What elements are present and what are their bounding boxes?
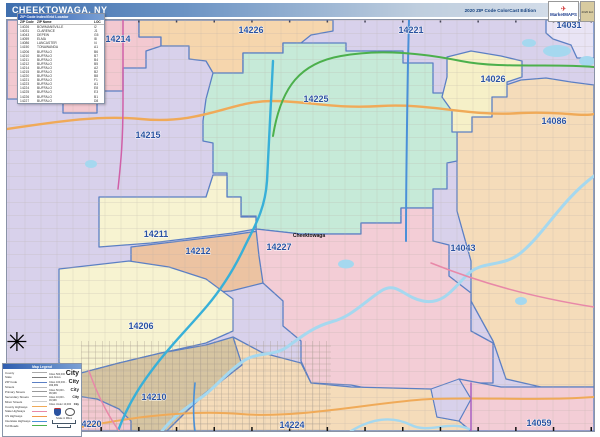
city-size-row: Cities 10,000 - 49,999City [49, 395, 79, 402]
highway-shields [49, 408, 79, 416]
city-sample: City [69, 379, 79, 385]
zip-label-14215: 14215 [135, 130, 160, 140]
interstate-sample [32, 421, 47, 422]
pond [515, 297, 527, 305]
scale-bar [52, 420, 76, 424]
logo-brand-text: MarketMAPS [550, 13, 577, 17]
legend-label: Toll Roads [5, 424, 32, 428]
secondary-street-sample [32, 396, 47, 397]
legend-city-sizes: Cities 500,000 and AboveCity Cities 100,… [47, 370, 79, 428]
zip-label-14211: 14211 [144, 229, 169, 239]
zip-label-14212: 14212 [185, 246, 210, 256]
cell-name: BUFFALO [37, 99, 94, 103]
legend-line-samples: County State ZIP Code Streets Primary St… [5, 370, 47, 428]
legend-label: Streets [5, 385, 32, 389]
legend-item: Toll Roads [5, 423, 47, 428]
interstate-shield-icon [54, 408, 61, 416]
urban-street-texture [81, 341, 331, 431]
zip-label-14214: 14214 [105, 34, 130, 44]
pond [522, 39, 536, 47]
toll-road-sample [32, 425, 47, 426]
legend-body: County State ZIP Code Streets Primary St… [3, 369, 81, 429]
zip-index-table: ZIP Code Index/Grid Locator ZIP Code ZIP… [17, 13, 105, 104]
zip-label-14210: 14210 [141, 392, 166, 402]
cell-zip: 14227 [20, 99, 37, 103]
cell-loc: D8 [94, 99, 102, 103]
state-highway-sample [32, 411, 47, 412]
legend-label: Minor Streets [5, 400, 32, 404]
legend-label: Secondary Streets [5, 395, 32, 399]
table-row: 14227 BUFFALO D8 [18, 99, 104, 103]
scale-bar-small [57, 425, 71, 429]
street-line-sample [32, 387, 47, 388]
col-loc: LOC [94, 20, 102, 24]
legend-label: State [5, 375, 32, 379]
legend-label: Interstate Highways [5, 419, 32, 423]
zip-label-14224: 14224 [279, 420, 304, 430]
us-highway-sample [32, 416, 47, 417]
zip-label-14225: 14225 [303, 94, 328, 104]
state-line-sample [32, 377, 47, 378]
compass-rose-icon: ✳ [6, 328, 28, 356]
legend-label: County Highways [5, 405, 32, 409]
city-sample: City [66, 370, 79, 377]
legend-label: ZIP Code [5, 380, 32, 384]
pond [85, 160, 97, 168]
legend-label: County [5, 371, 32, 375]
zip-label-14206: 14206 [128, 321, 153, 331]
city-sample: City [70, 387, 79, 392]
zip-label-14227: 14227 [266, 242, 291, 252]
city-size-row: Cities 100,000 - 499,999City [49, 379, 79, 387]
city-size-row: Cities Under 10,000City [49, 402, 79, 406]
map-legend: Map Legend County State ZIP Code Streets… [2, 363, 82, 437]
legend-label: US Highways [5, 414, 32, 418]
county-line-sample [32, 372, 47, 373]
city-size-label: Cities Under 10,000 [49, 403, 71, 406]
city-size-row: Cities 50,000 - 99,999City [49, 387, 79, 395]
edition-label: 2020 ZIP Code ColorCast Edition [465, 8, 536, 13]
page: CHEEKTOWAGA, NY 2020 ZIP Code ColorCast … [0, 0, 600, 437]
col-zip-code: ZIP Code [20, 20, 37, 24]
city-sample: City [72, 395, 79, 399]
brand-logo: ✈ MarketMAPS 2020 Ed. [548, 1, 595, 22]
logo-box: ✈ MarketMAPS [548, 1, 579, 22]
legend-label: State Highways [5, 409, 32, 413]
zip-label-14221: 14221 [398, 25, 423, 35]
zip-index-rows: 14026 BOWMANSVILLE I2 14031 CLARENCE J1 … [18, 25, 104, 103]
zip-line-sample [32, 382, 47, 383]
lake [543, 45, 571, 57]
zip-label-14226: 14226 [238, 25, 263, 35]
legend-label: Primary Streets [5, 390, 32, 394]
city-label-cheektowaga: Cheektowaga [293, 233, 325, 239]
zip-label-14086: 14086 [541, 116, 566, 126]
primary-street-sample [32, 391, 47, 392]
zip-label-14026: 14026 [480, 74, 505, 84]
city-size-row: Cities 500,000 and AboveCity [49, 370, 79, 379]
county-highway-sample [32, 406, 47, 407]
city-sample: City [74, 402, 79, 406]
zip-label-14043: 14043 [450, 243, 475, 253]
pond [338, 260, 354, 269]
logo-edition-tag: 2020 Ed. [580, 1, 595, 22]
us-highway-shield-icon [65, 408, 75, 416]
scale-label: Scale in Miles [49, 417, 79, 420]
map-scale: Scale in Miles [49, 417, 79, 429]
col-zip-name: ZIP Name [37, 20, 94, 24]
zip-label-14059: 14059 [526, 418, 551, 428]
minor-street-sample [32, 401, 47, 402]
